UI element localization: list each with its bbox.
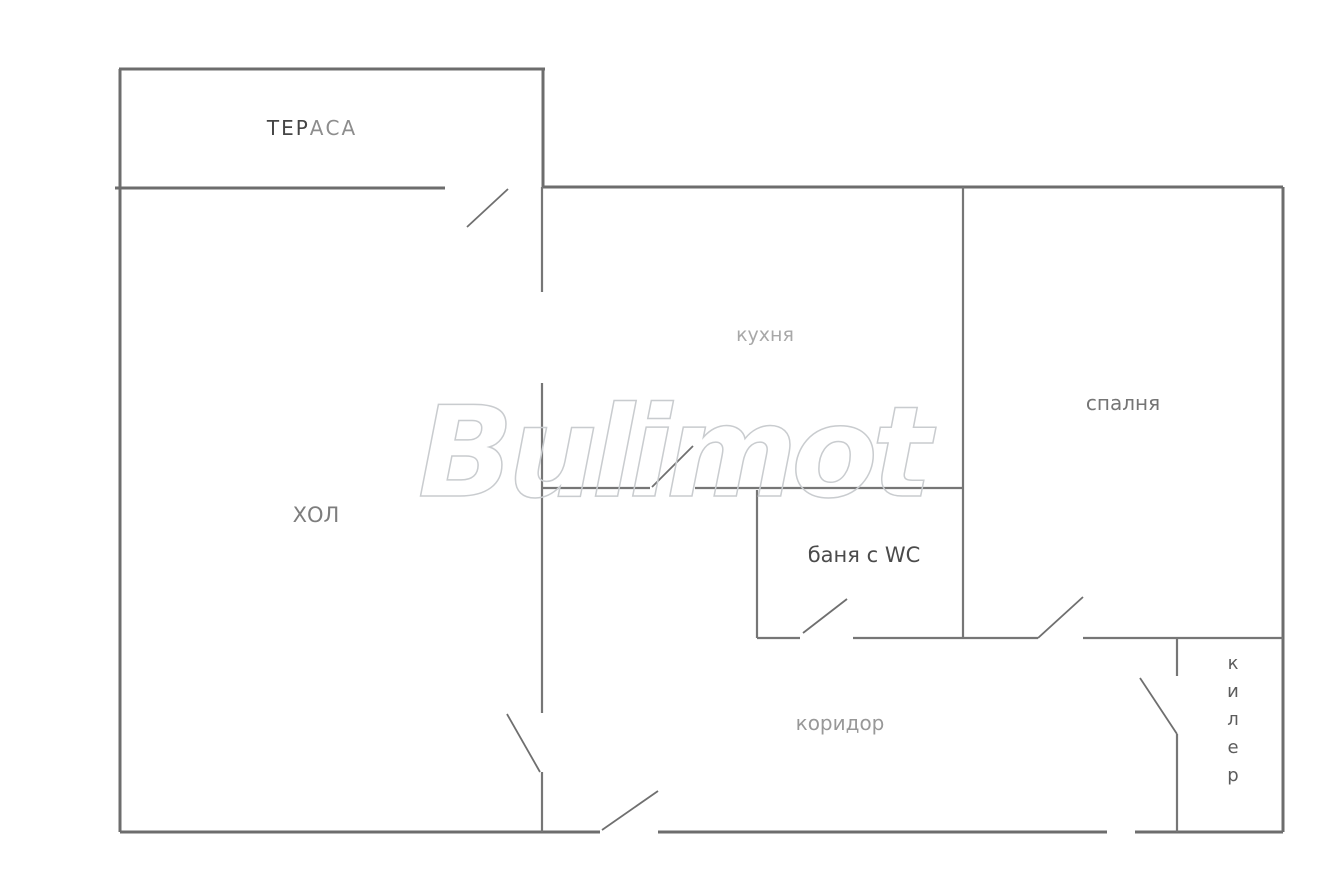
terrace-door-swing [467,189,508,227]
corridor-label: коридор [796,711,885,735]
bathroom-label: баня с WC [808,543,921,567]
bedroom-label: спалня [1086,391,1160,415]
watermark-text: Bulimot [418,379,937,526]
pantry-label: к [1228,653,1239,674]
bedroom-door-swing [1038,597,1083,638]
floorplan-canvas: ТЕРАСАкухняспалняХОЛбаня с WCкоридоркиле… [0,0,1344,892]
hall-label: ХОЛ [293,503,340,527]
hall-door-swing [507,714,540,772]
pantry-label: л [1227,709,1239,730]
pantry-label: и [1227,681,1239,702]
kitchen-label: кухня [736,324,794,346]
entrance-door-swing [602,791,658,830]
bathroom-door-swing [803,599,847,633]
floor-plan-svg: ТЕРАСАкухняспалняХОЛбаня с WCкоридоркиле… [0,0,1344,892]
pantry-door-swing [1140,678,1177,734]
pantry-label: р [1227,765,1238,786]
terrace-label: ТЕРАСА [266,116,357,140]
pantry-label: е [1227,737,1238,758]
